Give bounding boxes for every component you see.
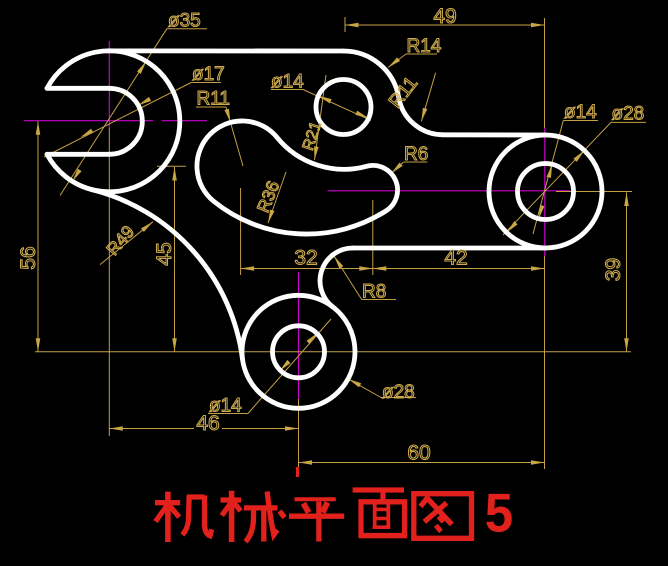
svg-text:56: 56: [17, 246, 40, 269]
svg-text:39: 39: [602, 258, 625, 281]
svg-text:ø14: ø14: [209, 396, 242, 417]
svg-text:R6: R6: [404, 144, 428, 165]
svg-text:R11: R11: [197, 89, 230, 110]
svg-text:42: 42: [444, 247, 467, 270]
svg-text:ø28: ø28: [382, 382, 415, 403]
svg-text:R14: R14: [407, 36, 442, 57]
svg-text:ø14: ø14: [271, 72, 304, 93]
svg-text:45: 45: [153, 242, 176, 265]
svg-text:5: 5: [485, 483, 513, 544]
svg-text:49: 49: [433, 5, 456, 28]
svg-text:ø17: ø17: [192, 64, 225, 85]
svg-text:60: 60: [407, 442, 430, 465]
svg-text:R8: R8: [362, 282, 386, 303]
svg-text:ø35: ø35: [168, 11, 201, 32]
svg-text:32: 32: [294, 247, 317, 270]
svg-text:ø14: ø14: [564, 102, 597, 123]
svg-text:ø28: ø28: [612, 104, 645, 125]
